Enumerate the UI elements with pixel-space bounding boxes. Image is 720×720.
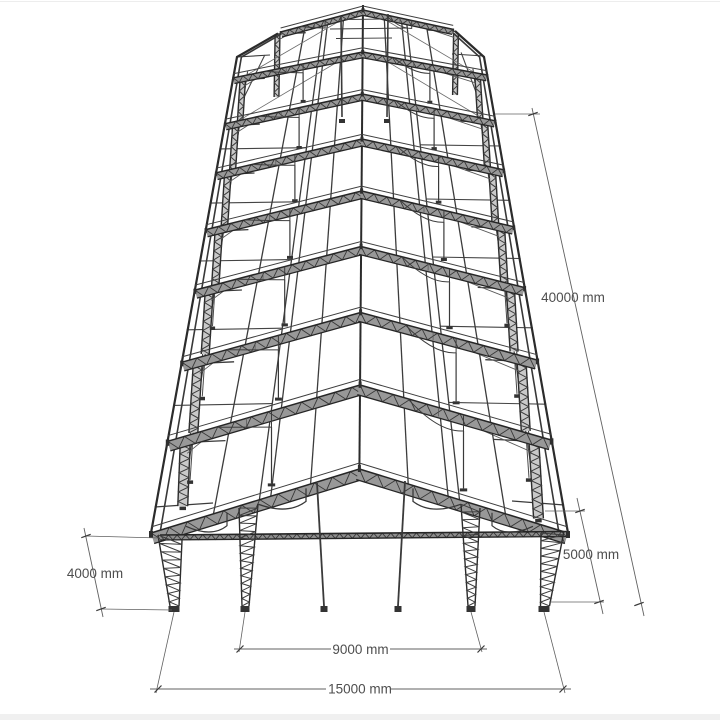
- svg-text:40000 mm: 40000 mm: [541, 290, 605, 305]
- svg-text:5000 mm: 5000 mm: [563, 547, 619, 562]
- svg-text:9000 mm: 9000 mm: [332, 642, 388, 657]
- svg-text:15000 mm: 15000 mm: [328, 682, 392, 697]
- svg-text:4000 mm: 4000 mm: [67, 566, 123, 581]
